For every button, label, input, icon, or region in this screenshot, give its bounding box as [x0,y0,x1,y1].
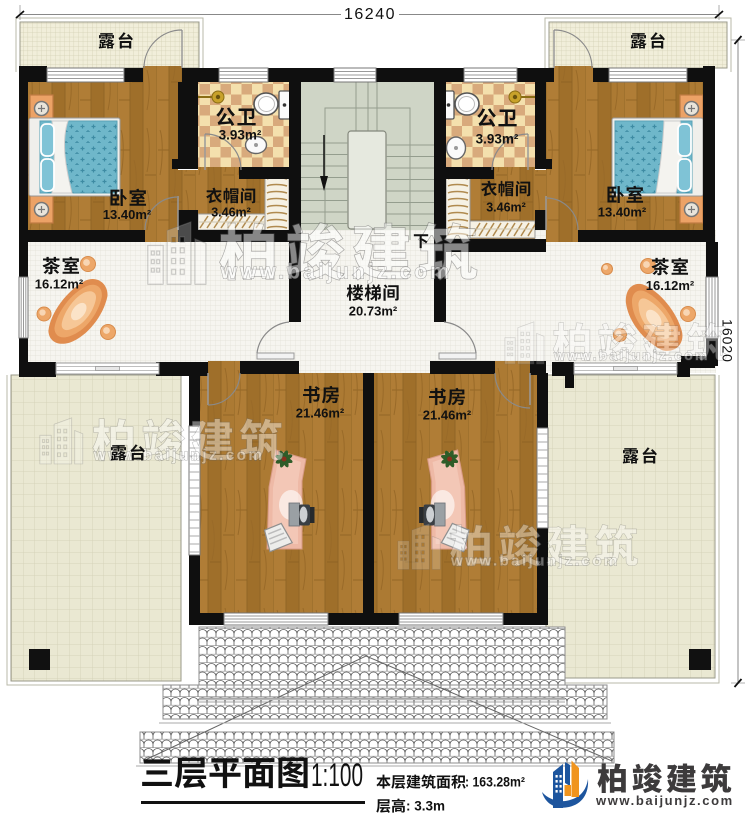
svg-text:16020: 16020 [720,319,736,363]
svg-text:20.73m²: 20.73m² [349,304,398,319]
svg-text:16.12m²: 16.12m² [35,277,84,292]
svg-text:www.baijunjz.com: www.baijunjz.com [450,552,620,569]
svg-text:: 3.3m: : 3.3m [406,799,445,814]
svg-text:16.12m²: 16.12m² [646,278,695,293]
svg-text:3.93m²: 3.93m² [219,128,262,143]
svg-text:www.baijunjz.com: www.baijunjz.com [220,261,452,284]
svg-text:21.46m²: 21.46m² [296,406,345,421]
svg-text:3.46m²: 3.46m² [486,200,526,214]
svg-text:3.93m²: 3.93m² [476,132,519,147]
svg-text:21.46m²: 21.46m² [423,408,472,423]
svg-text:www.baijunjz.com: www.baijunjz.com [595,793,734,808]
svg-text:: 163.28m²: : 163.28m² [465,775,525,790]
svg-text:16240: 16240 [344,6,396,23]
svg-text:13.40m²: 13.40m² [598,205,647,220]
svg-text:13.40m²: 13.40m² [103,207,152,222]
svg-text:1:100: 1:100 [311,757,363,793]
svg-text:www.baijunjz.com: www.baijunjz.com [553,347,710,363]
svg-text:3.46m²: 3.46m² [211,205,251,219]
